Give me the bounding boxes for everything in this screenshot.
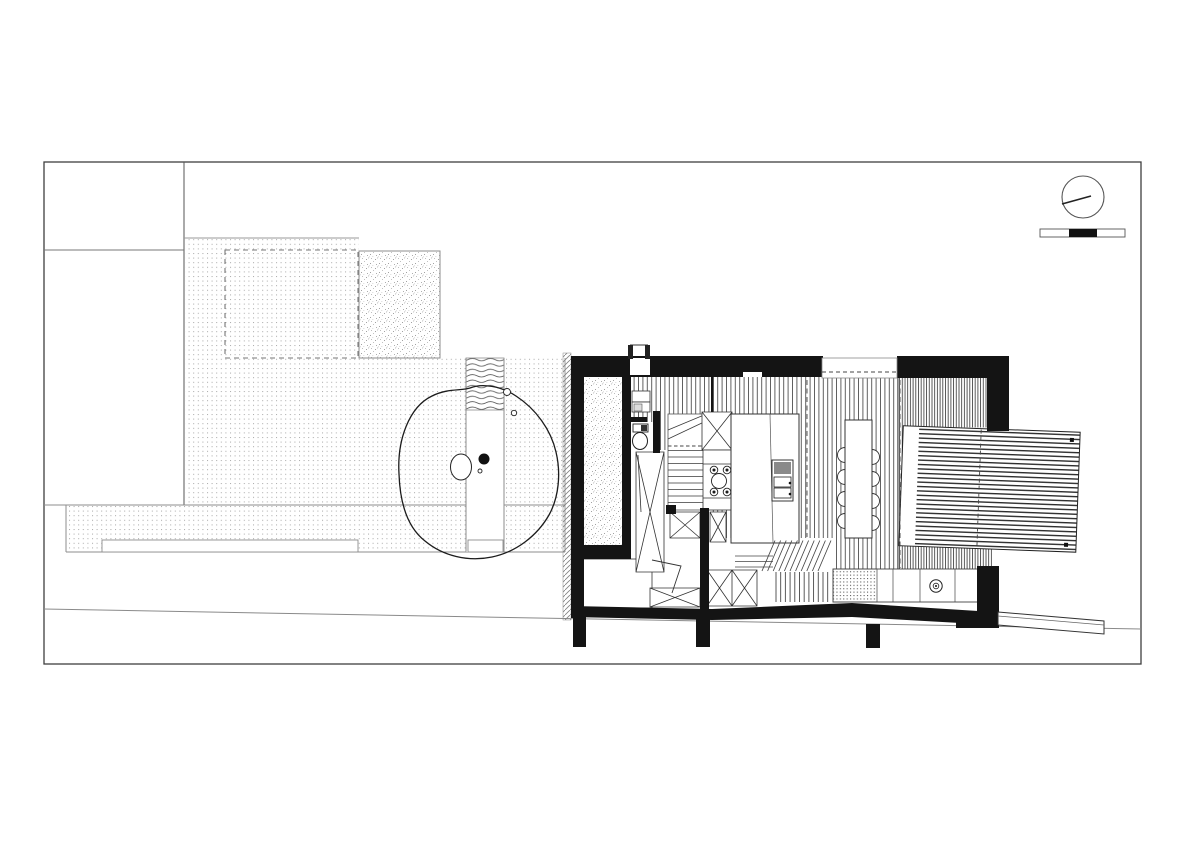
planting-circle [478,469,482,473]
deck-post [1064,543,1068,547]
bench-x [710,512,726,542]
wc-room [631,422,654,454]
rear-counter [833,569,978,602]
north-window [822,358,897,378]
planting-circle [511,410,516,415]
toilet-flush [641,425,647,431]
deck-boards [915,426,1080,552]
courtyard-wall [622,377,631,545]
toilet-bowl [633,433,648,450]
counter-sink-drain [935,585,937,587]
courtyard-lightwell [584,377,622,545]
porch-post [645,345,650,359]
bench-x [670,512,700,538]
double-bench-x [707,570,757,606]
existing-footprint [359,251,440,358]
garden-step [102,540,358,552]
wavy-strip [466,358,504,410]
wardrobe-x [702,412,732,450]
dining-table [845,420,872,538]
wc-partition-vertical [653,411,660,453]
deck-terrace [899,426,1080,552]
scale-bar-black-segment [1069,229,1097,237]
tree-shrub [451,454,472,480]
closet-inner [634,404,642,411]
planting-circle [504,389,511,396]
porch-post [628,345,633,359]
window-opening [822,358,897,378]
mid-wall [700,508,709,610]
counter-dotted-cells [833,569,877,602]
south-pier [866,624,880,648]
path-landing [468,540,503,552]
garden-upper [184,238,359,505]
west-wall [571,356,584,618]
scale-bar [1040,229,1125,237]
lower-steps [773,572,831,602]
east-wall-upper [987,377,1009,431]
kitchen-island [731,414,799,543]
sink-drainer [774,462,791,474]
counter-run [703,450,733,510]
tall-shelf-x [636,452,664,572]
plan-drawing [0,0,1191,842]
kitchen-counter [703,450,733,510]
courtyard-sill-wall [571,545,631,559]
faucet-dot [789,482,792,485]
tree-trunk [479,454,490,465]
hall-divider [711,370,714,412]
closet-cell [632,391,650,402]
low-bench-x [650,588,700,607]
staircase [668,414,704,510]
plan-page [0,0,1191,842]
wall-stub-small [666,505,676,514]
path-surface [466,410,504,552]
wc-partition [628,417,647,422]
north-wall-west [571,356,823,377]
garden-lower [359,358,565,505]
faucet-dot [789,493,792,496]
south-pier [573,617,586,647]
boundary-wall [563,353,571,620]
south-pier [696,618,710,647]
window-slot [743,372,762,377]
entry-door-opening [630,358,650,375]
deck-post [1070,438,1074,442]
north-wall-east [897,356,1009,378]
entry-closet [632,391,650,412]
